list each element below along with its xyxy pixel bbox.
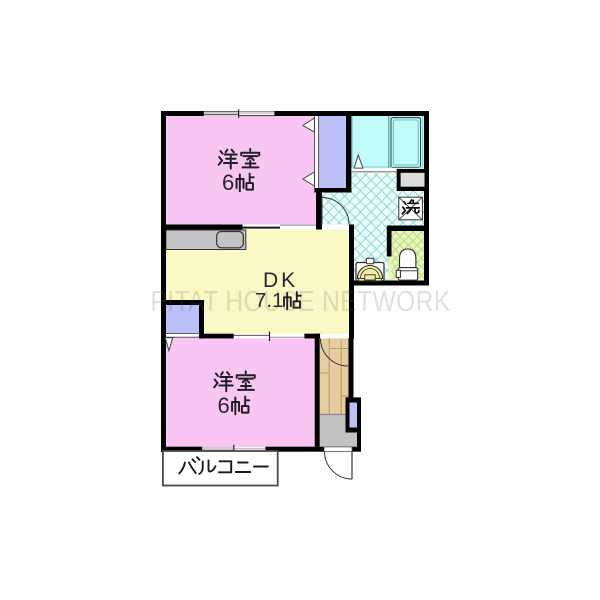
svg-text:PITAT HOUSE NETWORK: PITAT HOUSE NETWORK — [151, 285, 451, 317]
svg-text:6: 6 — [218, 393, 230, 418]
svg-text:6: 6 — [222, 170, 234, 195]
